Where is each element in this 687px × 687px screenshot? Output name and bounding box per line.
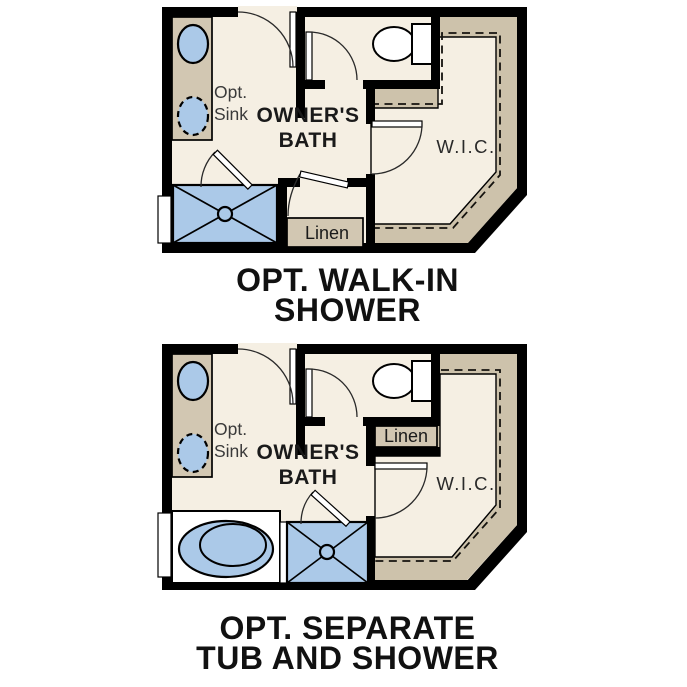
door-leaf [306,32,312,80]
shower-drain-icon [320,545,334,559]
plan-title-line2: SHOWER [150,295,545,325]
door-leaf [372,121,422,127]
floor-plan-opt-separate-tub-and-shower: Opt. Sink OWNER'S BATH W.I.C. Linen [150,337,545,605]
floor-plan-opt-walk-in-shower: Opt. Sink OWNER'S BATH W.I.C. Linen [150,0,545,268]
shower-icon [287,522,368,583]
walk-in-shower-icon [173,185,277,243]
plan-title-walk-in-shower: OPT. WALK-IN SHOWER [150,265,545,325]
owners-bath-label-line1: OWNER'S [257,104,360,127]
door-leaf [375,463,427,469]
plan-title-line1: OPT. SEPARATE [150,613,545,643]
opt-sink-label-line1: Opt. [214,419,247,439]
sink-icon [178,25,208,63]
window [158,513,171,577]
toilet-icon [373,24,432,64]
shower-drain-icon [218,207,232,221]
toilet-icon [373,361,432,401]
owners-bath-label-line2: BATH [279,129,338,152]
optional-sink-icon [178,434,208,472]
opt-sink-label-line1: Opt. [214,82,247,102]
tub-icon [172,511,280,583]
wic-label: W.I.C. [436,136,495,157]
optional-sink-icon [178,97,208,135]
plan-title-line1: OPT. WALK-IN [150,265,545,295]
opt-sink-label-line2: Sink [214,441,248,461]
door-leaf [306,369,312,417]
linen-label: Linen [384,426,428,446]
plan-title-line2: TUB AND SHOWER [150,643,545,673]
linen-label: Linen [305,223,349,243]
owners-bath-label-line1: OWNER'S [257,441,360,464]
wic-label: W.I.C. [436,473,495,494]
sink-icon [178,362,208,400]
plan-title-separate-tub-and-shower: OPT. SEPARATE TUB AND SHOWER [150,613,545,673]
opt-sink-label-line2: Sink [214,104,248,124]
owners-bath-label-line2: BATH [279,466,338,489]
window [158,196,171,243]
